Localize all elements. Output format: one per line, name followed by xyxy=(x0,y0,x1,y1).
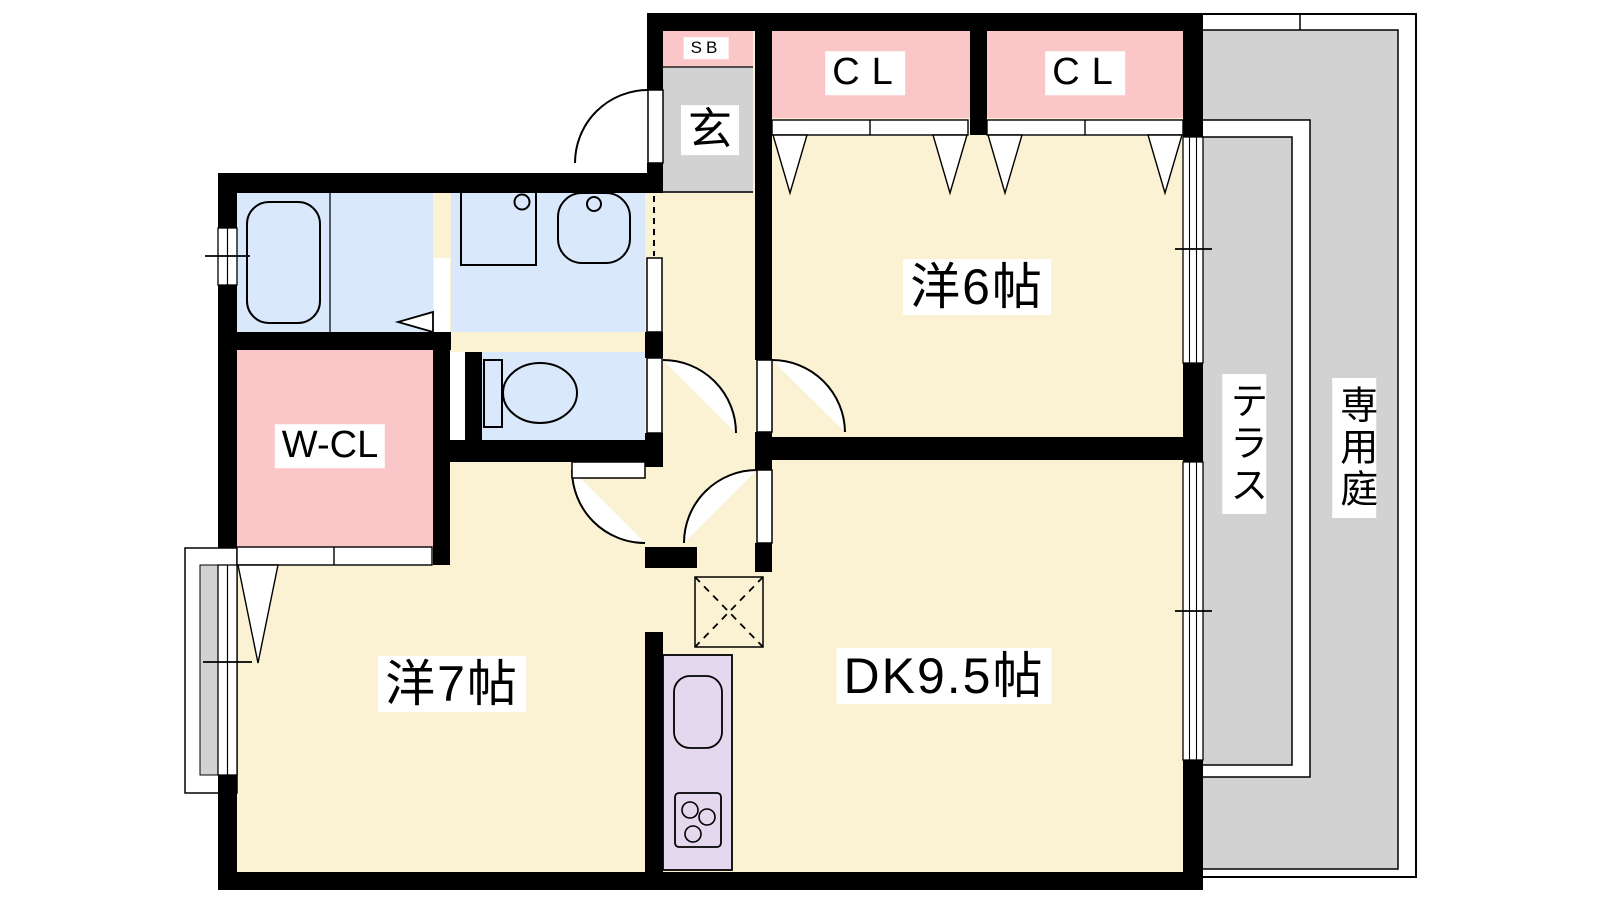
terrace-label: テラス xyxy=(1222,374,1266,514)
floor-plan: SB 玄 CL CL 洋6帖 W-CL 洋7帖 DK9.5帖 テラス 専用庭 xyxy=(0,0,1600,900)
dining-kitchen-label: DK9.5帖 xyxy=(837,648,1052,704)
bathroom-floor xyxy=(237,192,433,332)
private-garden-label: 専用庭 xyxy=(1332,378,1376,518)
basin-faucet-icon xyxy=(587,197,601,211)
pipe-space xyxy=(450,352,465,440)
entrance-door xyxy=(575,90,663,163)
western6-label: 洋6帖 xyxy=(903,259,1051,315)
toilet-floor xyxy=(482,352,645,440)
western7-label: 洋7帖 xyxy=(378,656,526,712)
walkin-closet-label: W-CL xyxy=(275,424,385,468)
shoe-box-label: SB xyxy=(684,37,729,59)
closet1-label: CL xyxy=(825,51,905,95)
entrance-label: 玄 xyxy=(681,105,739,155)
closet2-label: CL xyxy=(1045,51,1125,95)
